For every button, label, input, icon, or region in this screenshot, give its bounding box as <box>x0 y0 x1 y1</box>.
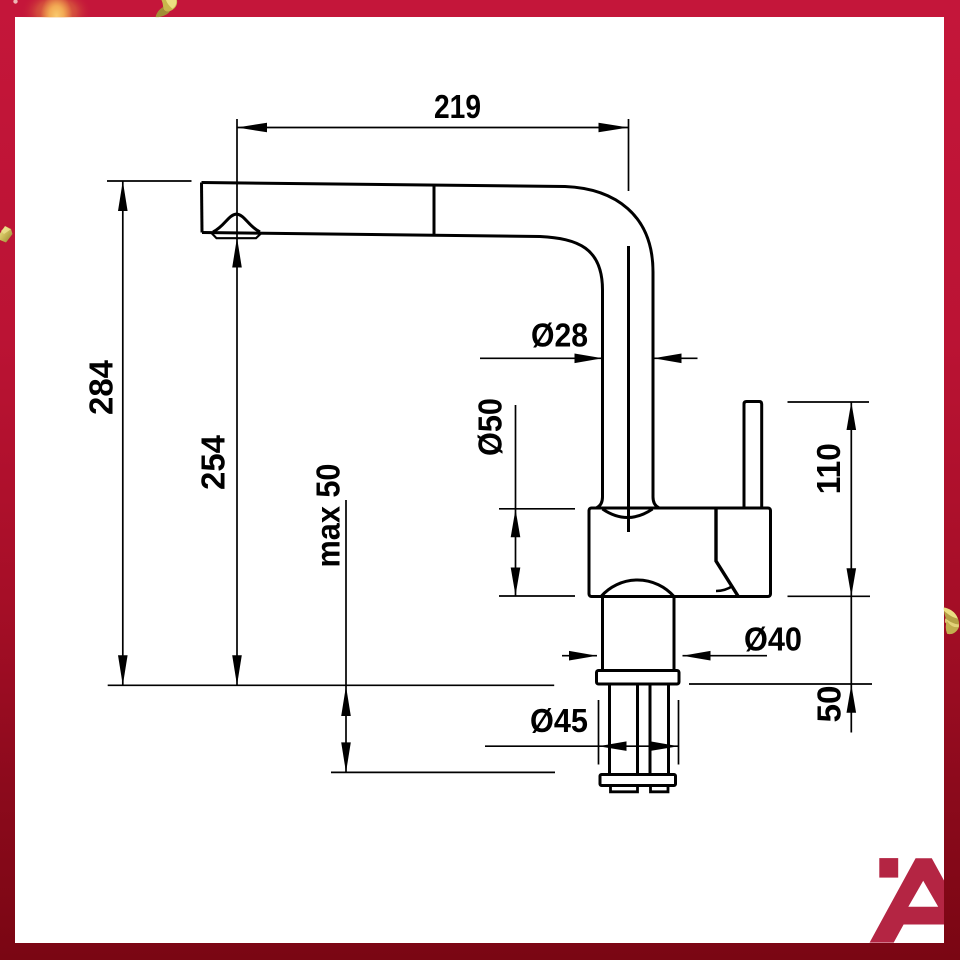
svg-text:284: 284 <box>83 359 120 415</box>
svg-text:110: 110 <box>810 443 847 494</box>
svg-text:Ø45: Ø45 <box>530 702 588 739</box>
svg-text:Ø28: Ø28 <box>531 317 588 354</box>
svg-text:219: 219 <box>434 88 481 125</box>
svg-text:254: 254 <box>195 434 232 490</box>
svg-text:Ø40: Ø40 <box>744 621 802 658</box>
svg-text:50: 50 <box>811 686 848 723</box>
svg-text:max 50: max 50 <box>310 464 347 568</box>
svg-text:Ø50: Ø50 <box>472 398 509 456</box>
